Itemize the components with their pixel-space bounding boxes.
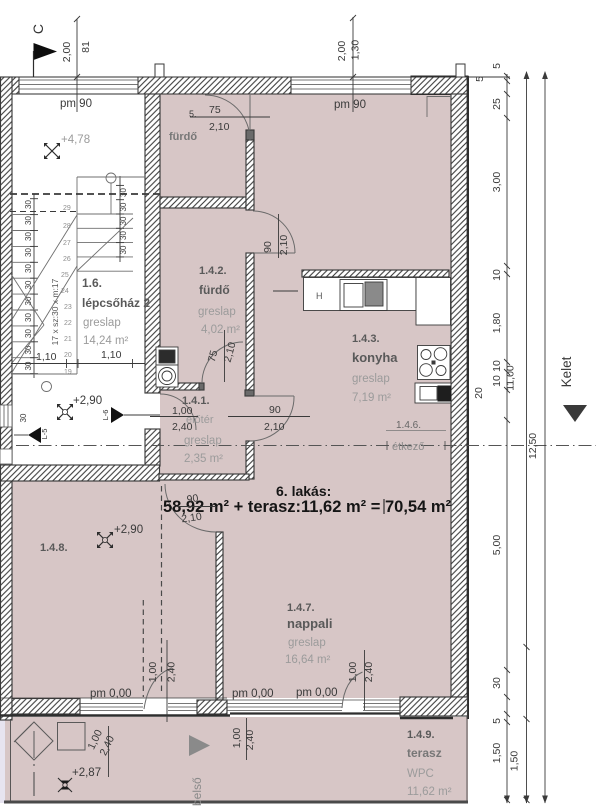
svg-text:lépcsőház 2: lépcsőház 2 <box>82 296 150 310</box>
svg-text:+2,90: +2,90 <box>73 395 102 407</box>
svg-text:4,02 m²: 4,02 m² <box>201 324 240 336</box>
svg-text:pm 0,00: pm 0,00 <box>296 687 338 699</box>
svg-text:24: 24 <box>61 288 69 295</box>
svg-text:+2,90: +2,90 <box>114 524 143 536</box>
svg-text:2,00: 2,00 <box>336 41 348 62</box>
svg-text:30: 30 <box>19 413 28 422</box>
svg-text:+4,78: +4,78 <box>61 134 90 146</box>
svg-text:2,10: 2,10 <box>278 235 290 256</box>
svg-text:2,00: 2,00 <box>61 42 73 63</box>
svg-text:1.4.6.: 1.4.6. <box>396 420 421 431</box>
svg-text:29: 29 <box>63 205 71 212</box>
svg-text:30: 30 <box>119 231 128 240</box>
svg-text:1.6.: 1.6. <box>82 276 102 290</box>
svg-text:30: 30 <box>24 200 33 209</box>
svg-text:C: C <box>30 24 46 34</box>
svg-text:10: 10 <box>491 269 503 281</box>
svg-text:26: 26 <box>63 256 71 263</box>
svg-text:nappali: nappali <box>287 616 333 631</box>
svg-text:28: 28 <box>63 223 71 230</box>
svg-text:Kelet: Kelet <box>559 356 574 387</box>
svg-text:konyha: konyha <box>352 350 398 365</box>
svg-text:1,50: 1,50 <box>509 751 521 772</box>
svg-text:23: 23 <box>64 304 72 311</box>
svg-text:11,00: 11,00 <box>505 365 517 391</box>
svg-text:2,40: 2,40 <box>172 421 193 433</box>
svg-text:30: 30 <box>24 216 33 225</box>
svg-text:2,10: 2,10 <box>264 421 285 433</box>
svg-text:30: 30 <box>119 245 128 254</box>
svg-text:terasz: terasz <box>407 746 442 760</box>
svg-text:11,62 m²: 11,62 m² <box>407 786 452 798</box>
svg-text:75: 75 <box>209 104 221 116</box>
svg-text:pm 0,00: pm 0,00 <box>90 688 132 700</box>
svg-text:20: 20 <box>473 387 485 399</box>
svg-text:30: 30 <box>24 361 33 370</box>
svg-text:1,00: 1,00 <box>147 662 159 683</box>
svg-text:1,50: 1,50 <box>491 743 503 764</box>
svg-text:5.: 5. <box>189 109 197 119</box>
svg-text:5: 5 <box>491 718 503 724</box>
svg-text:pm 90: pm 90 <box>60 98 92 110</box>
svg-text:21: 21 <box>64 336 72 343</box>
svg-text:10: 10 <box>491 375 503 387</box>
svg-text:greslap: greslap <box>184 435 222 447</box>
svg-text:1.4.3.: 1.4.3. <box>352 333 380 345</box>
svg-text:6. lakás:: 6. lakás: <box>276 483 331 499</box>
svg-text:90: 90 <box>269 404 281 416</box>
svg-text:L-5: L-5 <box>40 429 49 440</box>
svg-text:27: 27 <box>63 240 71 247</box>
svg-text:1,10: 1,10 <box>101 349 122 361</box>
svg-text:1.4.7.: 1.4.7. <box>287 602 315 614</box>
svg-text:10: 10 <box>491 360 503 372</box>
svg-text:greslap: greslap <box>352 373 390 385</box>
svg-text:1,00: 1,00 <box>172 405 193 417</box>
svg-text:30: 30 <box>491 677 503 689</box>
svg-text:81: 81 <box>80 41 92 53</box>
svg-text:pm 90: pm 90 <box>334 99 366 111</box>
svg-text:2,10: 2,10 <box>209 121 230 133</box>
svg-text:5: 5 <box>491 63 503 69</box>
svg-text:greslap: greslap <box>288 637 326 649</box>
svg-text:1,30: 1,30 <box>350 40 362 61</box>
svg-text:30: 30 <box>24 264 33 273</box>
svg-text:fürdő: fürdő <box>199 283 230 297</box>
svg-text:2,35 m²: 2,35 m² <box>184 453 223 465</box>
svg-text:2,40: 2,40 <box>244 730 256 751</box>
svg-text:25: 25 <box>61 272 69 279</box>
svg-text:greslap: greslap <box>198 306 236 318</box>
svg-text:30: 30 <box>24 248 33 257</box>
svg-text:16,64 m²: 16,64 m² <box>285 654 331 666</box>
svg-text:25: 25 <box>491 98 503 110</box>
svg-text:14,24 m²: 14,24 m² <box>83 335 129 347</box>
svg-text:1,00: 1,00 <box>231 728 243 749</box>
svg-text:+2,87: +2,87 <box>72 767 101 779</box>
svg-text:1.4.8.: 1.4.8. <box>40 542 68 554</box>
svg-text:20: 20 <box>64 352 72 359</box>
svg-text:1.4.9.: 1.4.9. <box>407 729 435 741</box>
svg-text:pm 0,00: pm 0,00 <box>232 688 274 700</box>
svg-text:30: 30 <box>24 232 33 241</box>
svg-text:22: 22 <box>64 320 72 327</box>
svg-text:belső: belső <box>190 777 204 806</box>
svg-text:1,80: 1,80 <box>491 313 503 334</box>
svg-text:58,92 m² + terasz:11,62 m² = 7: 58,92 m² + terasz:11,62 m² = 70,54 m² <box>163 498 452 516</box>
svg-text:H: H <box>316 291 323 301</box>
svg-text:3,00: 3,00 <box>491 172 503 193</box>
svg-text:17 x sz:30 x m:17: 17 x sz:30 x m:17 <box>50 278 60 345</box>
svg-text:étkező: étkező <box>392 441 424 453</box>
svg-text:30: 30 <box>119 202 128 211</box>
svg-text:1,00: 1,00 <box>347 662 359 683</box>
svg-text:12,50: 12,50 <box>527 433 539 459</box>
svg-text:30: 30 <box>119 188 128 197</box>
svg-text:90: 90 <box>262 241 274 253</box>
svg-text:90: 90 <box>186 492 199 506</box>
svg-text:1,10: 1,10 <box>36 351 57 363</box>
svg-text:30: 30 <box>24 313 33 322</box>
svg-text:5: 5 <box>474 76 486 82</box>
svg-text:19: 19 <box>64 369 72 376</box>
svg-text:1.4.2.: 1.4.2. <box>199 265 227 277</box>
svg-text:L-6: L-6 <box>101 410 110 421</box>
svg-text:fürdő: fürdő <box>169 131 197 143</box>
svg-text:7,19 m²: 7,19 m² <box>352 392 391 404</box>
svg-text:5,00: 5,00 <box>491 535 503 556</box>
svg-text:WPC: WPC <box>407 768 434 780</box>
svg-text:greslap: greslap <box>83 317 121 329</box>
svg-text:30: 30 <box>24 329 33 338</box>
